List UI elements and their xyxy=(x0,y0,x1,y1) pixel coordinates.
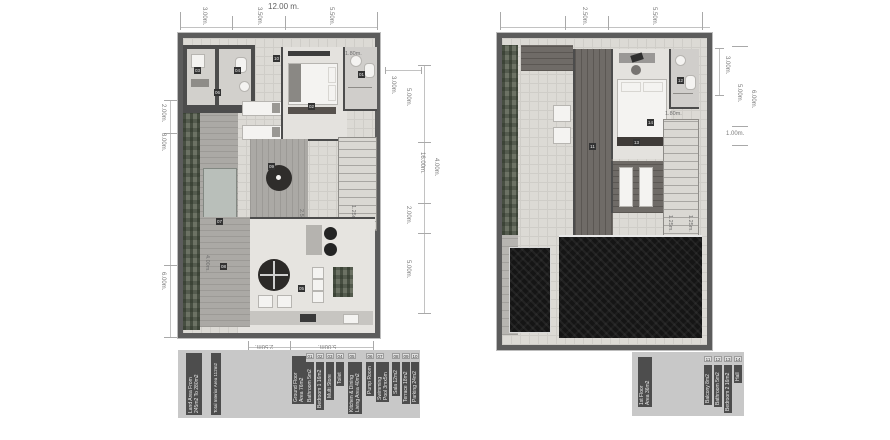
toilet-icon xyxy=(364,63,375,78)
garden-strip xyxy=(183,108,200,330)
legend-item-swimming-pool: Swimming Pool 3mx5m xyxy=(376,362,389,402)
legend-item-balcony: Balcony 8m2 xyxy=(704,365,712,405)
lounger-pillow xyxy=(272,103,280,113)
dim-tick xyxy=(565,16,566,30)
legend-item-num: 07 xyxy=(376,353,384,359)
legend-item-num: 12 xyxy=(714,356,722,362)
dim-tick xyxy=(608,16,609,30)
legend-item-num: 02 xyxy=(316,353,324,359)
dim-first-height-overall: 6.00m. xyxy=(749,90,756,108)
bathroom2 xyxy=(669,49,699,109)
room-marker: 12 xyxy=(677,77,684,84)
legend-item-num: 03 xyxy=(326,353,334,359)
bed-throw xyxy=(289,64,301,102)
legend-item-sala: Sala 12m2 xyxy=(392,362,400,396)
sun-lounger xyxy=(242,101,282,116)
dim-seg: 2.00m. xyxy=(404,206,411,224)
legend-item-num: 01 xyxy=(306,353,314,359)
pillow xyxy=(328,67,336,83)
dim-seg: 4.00m. xyxy=(432,158,439,176)
dim-line xyxy=(385,70,422,71)
sink-icon xyxy=(239,81,250,92)
room-marker: 03 xyxy=(194,67,201,74)
legend-item-num: 04 xyxy=(336,353,344,359)
legend-item-hall: Hall xyxy=(734,365,742,383)
legend-item-num: 05 xyxy=(348,353,356,359)
dim-line xyxy=(500,27,710,28)
dim-stairs: 1.25m. xyxy=(667,215,673,232)
room-marker: 10 xyxy=(273,55,280,62)
kitchen-counter xyxy=(240,311,373,325)
roof-dark-small xyxy=(509,247,551,333)
dim-tick xyxy=(180,12,181,30)
dim-tick xyxy=(702,12,703,30)
garden-strip xyxy=(502,45,518,235)
room-marker: 05 xyxy=(298,285,305,292)
bed-bench xyxy=(617,137,665,146)
shower-divider xyxy=(348,87,372,88)
dim-block: 3.00m. xyxy=(723,56,730,74)
legend-item-terrace: Terrace 18m2 xyxy=(402,362,410,404)
balcony xyxy=(573,49,613,255)
desk xyxy=(619,53,655,63)
dim-line xyxy=(719,48,720,95)
dim-tick xyxy=(715,95,724,96)
legend-first-floor-area: 1st Floor Area 36m2 xyxy=(638,357,652,407)
legend-item-num: 10 xyxy=(411,353,419,359)
dim-tick xyxy=(418,233,431,234)
dim-tick xyxy=(732,126,748,127)
plant-box xyxy=(333,267,353,297)
lounger-pillow xyxy=(272,127,280,137)
dim-block: 3.00m. xyxy=(389,76,396,94)
first-floor-plan: 1.80m. 1.25m. 1.25m. 11 12 13 14 xyxy=(497,33,712,350)
dim-tick xyxy=(385,67,386,74)
island-stool xyxy=(312,279,324,291)
dim-ground-width-overall: 12.00 m. xyxy=(268,2,299,11)
umbrella-table xyxy=(258,259,290,291)
dim-tick xyxy=(500,12,501,30)
kitchen-sink-icon xyxy=(343,314,359,324)
room-marker: 06 xyxy=(214,89,221,96)
legend-item-bedroom2: Bedroom 2 16m2 xyxy=(724,365,732,413)
dining-table xyxy=(306,225,322,255)
umbrella-spoke xyxy=(260,274,288,276)
room-marker: 13 xyxy=(633,139,640,146)
legend-item-bathroom: Bathroom 5m2 xyxy=(714,365,722,407)
dim-tick xyxy=(418,65,431,66)
dim-sala: 4.00m. xyxy=(204,255,210,272)
shower-divider xyxy=(673,93,693,94)
dim-seg: 5.50m. xyxy=(650,7,657,25)
pergola-slats xyxy=(521,45,573,71)
dim-tick xyxy=(418,203,431,204)
sink-icon xyxy=(675,55,686,66)
patio-chair xyxy=(258,295,273,308)
legend-item-kitchen-dining: Kitchen & Dining Living Area 40m2 xyxy=(348,362,362,414)
tv-cabinet xyxy=(288,51,330,56)
dim-tick xyxy=(377,12,378,30)
sala-deck xyxy=(200,217,250,327)
dim-line xyxy=(180,27,377,28)
dim-seg: 6.00m. xyxy=(159,272,166,290)
dim-seg: 1.00m. xyxy=(726,131,744,138)
dim-seg: 8.00m. xyxy=(159,133,166,151)
pillow xyxy=(621,82,641,92)
dining-chair xyxy=(324,243,337,256)
shelf xyxy=(191,79,209,87)
dim-stairs: 1.25m. xyxy=(687,215,693,232)
washer-icon xyxy=(191,54,205,68)
room-marker: 02 xyxy=(308,103,315,110)
dim-bathroom-width: 1.80m. xyxy=(665,111,682,117)
dim-seg: 2.00m. xyxy=(159,104,166,122)
room-marker: 07 xyxy=(216,218,223,225)
bed xyxy=(288,63,338,105)
toilet-icon xyxy=(685,75,696,90)
terrace-chair xyxy=(553,105,571,122)
sun-lounger xyxy=(242,125,282,140)
desk-chair xyxy=(631,65,641,75)
legend-item-num: 14 xyxy=(734,356,742,362)
dim-tick xyxy=(285,16,286,30)
room-marker: 09 xyxy=(268,163,275,170)
bedroom2 xyxy=(611,49,671,159)
toilet-room xyxy=(219,49,251,105)
roof-dark-large xyxy=(559,235,702,338)
legend-item-parking: Parking 24m2 xyxy=(411,362,419,404)
dim-tick xyxy=(732,145,748,146)
pillow xyxy=(328,85,336,101)
pump-store-room xyxy=(187,49,215,105)
room-marker: 01 xyxy=(358,71,365,78)
dim-seg: 3.50m. xyxy=(255,7,262,25)
room-marker: 04 xyxy=(234,67,241,74)
dim-tick xyxy=(418,142,431,143)
dim-tick xyxy=(164,100,177,101)
legend-total-interior-area: Total Interior Area 112m2 xyxy=(211,353,221,415)
stove-icon xyxy=(300,314,316,322)
legend-item-num: 11 xyxy=(704,356,712,362)
legend-land-area: Land Area From 245m2 To 280m2 xyxy=(186,353,202,415)
legend-item-num: 09 xyxy=(402,353,410,359)
legend-item-pump-room: Pump Room xyxy=(366,362,374,396)
room-marker: 08 xyxy=(220,263,227,270)
legend-ground-floor: Land Area From 245m2 To 280m2 Total Inte… xyxy=(178,350,420,418)
island-stool xyxy=(312,291,324,303)
legend-item-bathroom: Bathroom 5m2 xyxy=(306,362,314,404)
dim-tick xyxy=(232,16,233,30)
dining-chair xyxy=(324,227,337,240)
legend-item-num: 08 xyxy=(392,353,400,359)
legend-ground-floor-area: Ground Floor Area 76m2 xyxy=(292,356,306,404)
dim-tick xyxy=(421,67,422,74)
dim-tick xyxy=(164,265,177,266)
dim-tick xyxy=(164,337,177,338)
dim-bathroom-width: 1.80m. xyxy=(345,51,362,57)
dim-line xyxy=(170,100,171,338)
patio-chair xyxy=(277,295,292,308)
legend-first-floor: 1st Floor Area 36m2 11 Balcony 8m2 12 Ba… xyxy=(632,352,744,416)
dim-seg: 2.50m. xyxy=(255,342,273,349)
dim-seg: 2.50m. xyxy=(580,7,587,25)
laptop-icon xyxy=(630,52,644,62)
legend-item-multi-store: Multi Store xyxy=(326,362,334,400)
room-marker: 14 xyxy=(647,119,654,126)
legend-item-bedroom1: Bedroom 1 16m2 xyxy=(316,362,324,410)
dim-tick xyxy=(715,48,724,49)
dim-seg: 5.00m. xyxy=(404,260,411,278)
pillow xyxy=(643,82,663,92)
dim-seg: 5.00m. xyxy=(735,84,742,102)
dim-line xyxy=(424,65,425,313)
room-marker: 11 xyxy=(589,143,596,150)
legend-item-num: 13 xyxy=(724,356,732,362)
closet-rack xyxy=(619,167,633,207)
dim-seg: 3.00m. xyxy=(200,7,207,25)
dim-seg: 5.00m. xyxy=(318,342,336,349)
dim-tick xyxy=(732,46,748,47)
bedroom1 xyxy=(281,47,347,141)
table-center xyxy=(276,175,281,180)
floor-plan-sheet: 1.80m. 1.25m. 2.50m. 4.00m. xyxy=(0,0,890,440)
legend-item-toilet: Toilet xyxy=(336,362,344,386)
legend-item-num: 06 xyxy=(366,353,374,359)
island-stool xyxy=(312,267,324,279)
bed xyxy=(617,79,667,139)
closet-rack xyxy=(639,167,653,207)
dim-ground-height-overall: 16.00m. xyxy=(418,152,425,174)
terrace-chair xyxy=(553,127,571,144)
dim-seg: 5.50m. xyxy=(327,7,334,25)
ground-floor-plan: 1.80m. 1.25m. 2.50m. 4.00m. xyxy=(178,33,380,338)
dim-seg: 5.00m. xyxy=(404,88,411,106)
dim-tick xyxy=(418,313,431,314)
closet xyxy=(611,161,665,213)
